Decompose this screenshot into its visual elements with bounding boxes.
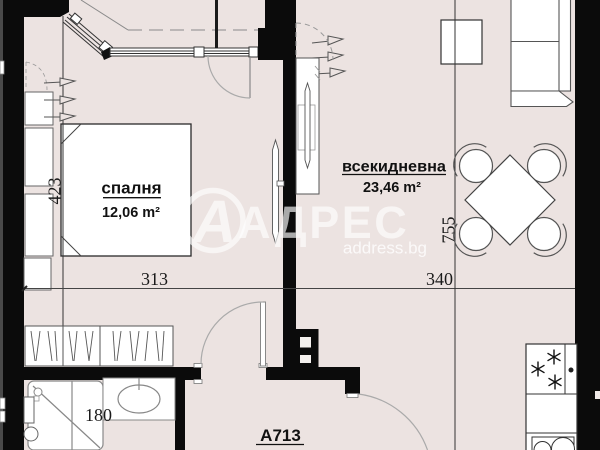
svg-text:всекидневна: всекидневна: [342, 159, 446, 176]
svg-text:313: 313: [141, 269, 168, 289]
svg-text:23,46 m²: 23,46 m²: [363, 180, 421, 196]
svg-text:755: 755: [439, 217, 459, 244]
svg-text:A713: A713: [260, 426, 301, 445]
svg-text:340: 340: [426, 269, 453, 289]
svg-text:address.bg: address.bg: [343, 239, 427, 258]
svg-text:спалня: спалня: [101, 179, 161, 198]
svg-text:12,06 m²: 12,06 m²: [102, 205, 160, 221]
svg-text:423: 423: [45, 178, 65, 205]
svg-text:180: 180: [85, 405, 112, 425]
